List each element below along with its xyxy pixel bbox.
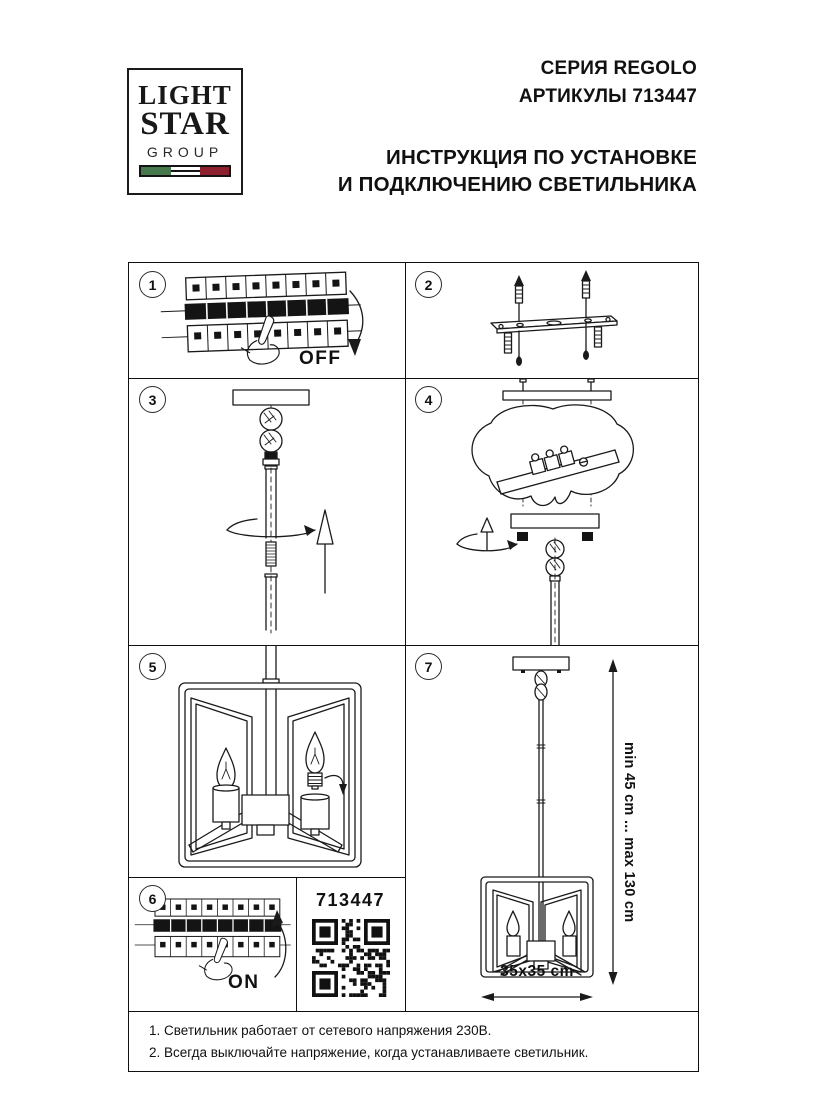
header: СЕРИЯ REGOLO АРТИКУЛЫ 713447 ИНСТРУКЦИЯ … [338,58,697,198]
off-label: OFF [299,348,342,370]
article-number-title: АРТИКУЛЫ 713447 [338,86,697,108]
rod-assembly-drawing [129,378,405,645]
logo-word-group: GROUP [129,145,241,159]
instruction-title: ИНСТРУКЦИЯ ПО УСТАНОВКЕ И ПОДКЛЮЧЕНИЮ СВ… [338,145,697,198]
step-number-badge: 1 [139,271,166,298]
step-number-badge: 6 [139,885,166,912]
flag-white-segment [171,167,200,175]
italian-flag-stripe [139,165,231,177]
fixture-dimensions-drawing [405,645,698,1011]
step-panel-4: 4 [405,378,698,645]
instruction-sheet: LIGHT STAR GROUP СЕРИЯ REGOLO АРТИКУЛЫ 7… [0,0,826,1097]
lightstar-logo: LIGHT STAR GROUP [127,68,243,195]
step-number-badge: 4 [415,386,442,413]
step-panel-5: 5 [129,645,405,877]
bulb-installation-drawing [129,645,405,877]
step-panel-3: 3 [129,378,405,645]
step-number-badge: 7 [415,653,442,680]
mounting-plate-drawing [405,263,698,378]
step-number-badge: 5 [139,653,166,680]
step-number-badge: 3 [139,386,166,413]
step-panel-1: 1 OFF [129,263,405,378]
step-panel-2: 2 [405,263,698,378]
on-label: ON [228,972,260,994]
series-title: СЕРИЯ REGOLO [338,58,697,80]
width-dimension-label: 35x35 cm [475,963,599,981]
qr-article-number: 713447 [296,890,405,911]
step-number-badge: 2 [415,271,442,298]
instruction-title-line2: И ПОДКЛЮЧЕНИЮ СВЕТИЛЬНИКА [338,172,697,199]
notes: 1. Светильник работает от сетевого напря… [129,1011,698,1071]
note-line-2: 2. Всегда выключайте напряжение, когда у… [149,1042,684,1064]
qr-panel: 713447 [296,877,405,1011]
instruction-table: 1 OFF 2 [128,262,699,1072]
logo-word-light: LIGHT [129,82,241,109]
breaker-off-drawing [129,263,405,378]
qr-code [312,919,390,997]
flag-red-segment [200,167,229,175]
logo-word-star: STAR [129,109,241,140]
note-line-1: 1. Светильник работает от сетевого напря… [149,1020,684,1042]
step-panel-6: 6 ON [129,877,296,1011]
height-dimension-label: min 45 cm ... max 130 cm [621,742,637,960]
step-panel-7: 7 [405,645,698,1011]
instruction-title-line1: ИНСТРУКЦИЯ ПО УСТАНОВКЕ [338,145,697,172]
flag-green-segment [141,167,171,175]
wiring-canopy-drawing [405,378,698,645]
